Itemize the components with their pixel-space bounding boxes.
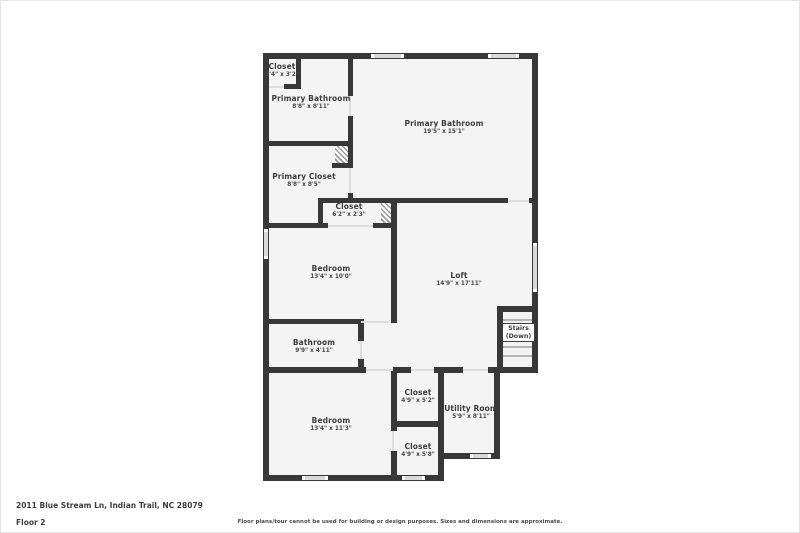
door-opening-closet-top <box>269 86 284 88</box>
door-opening-closet-mid <box>328 225 373 227</box>
door-opening-primary-closet <box>349 168 351 193</box>
floor-plan-page: Stairs (Down) Closet 3'4" x 3'2" Primary… <box>0 0 800 533</box>
door-opening-bathroom <box>360 341 362 359</box>
stair-step-line <box>503 319 532 321</box>
room-label-utility-room: Utility Room 5'9" x 8'11" <box>444 404 498 420</box>
wall-primary-closet-top <box>263 141 351 146</box>
room-label-bathroom: Bathroom 9'9" x 4'11" <box>293 338 335 354</box>
door-opening-utility <box>463 369 488 371</box>
stairs-label-line1: Stairs <box>508 325 529 333</box>
stair-step-line <box>503 346 532 348</box>
window-top-2 <box>488 54 519 58</box>
wall-stairs-top <box>497 306 538 312</box>
window-top-1 <box>371 54 404 58</box>
window-utility <box>470 454 491 458</box>
stairs-label-box: Stairs (Down) <box>502 323 535 342</box>
room-label-bedroom-bottom: Bedroom 13'4" x 11'3" <box>310 416 352 432</box>
room-label-loft: Loft 14'9" x 17'11" <box>436 271 482 287</box>
room-label-primary-bathroom-lg: Primary Bathroom 19'5" x 15'1" <box>405 119 484 135</box>
stair-step-line <box>503 355 532 357</box>
door-opening-bedroom-bottom <box>366 369 393 371</box>
room-label-closet-52: Closet 4'9" x 5'2" <box>401 388 435 404</box>
room-label-closet-58: Closet 4'9" x 5'8" <box>401 442 435 458</box>
window-right-loft <box>533 243 537 292</box>
room-label-bedroom-mid: Bedroom 13'4" x 10'0" <box>310 264 352 280</box>
wall-pb-small-right-a <box>348 53 353 96</box>
window-bottom-2 <box>402 476 425 480</box>
wall-stairs-bottom <box>497 367 538 373</box>
shaft-hatch-upper <box>335 146 348 163</box>
wall-mid-horizontal-b <box>529 198 538 203</box>
footer-address: 2011 Blue Stream Ln, Indian Trail, NC 28… <box>16 501 203 510</box>
room-label-closet-top: Closet 3'4" x 3'2" <box>265 62 299 78</box>
window-left <box>264 229 268 259</box>
footer-disclaimer: Floor plans/tour cannot be used for buil… <box>1 519 799 525</box>
wall-bedroom-mid-bottom <box>263 319 361 324</box>
door-opening-bedroom-mid <box>361 321 389 323</box>
stairs-label-line2: (Down) <box>506 333 532 341</box>
wall-closet-utility-divider <box>438 369 444 481</box>
door-opening-pb-large <box>508 200 529 202</box>
room-label-closet-mid: Closet 6'2" x 2'3" <box>332 202 366 218</box>
wall-closet-mid-left <box>318 198 323 228</box>
room-label-primary-bathroom-sm: Primary Bathroom 8'8" x 8'11" <box>272 94 351 110</box>
door-opening-closet-58 <box>392 431 394 451</box>
wall-outer-left <box>263 53 269 481</box>
wall-closet58-left-a <box>391 369 397 431</box>
window-bottom-1 <box>302 476 328 480</box>
room-label-primary-closet: Primary Closet 8'8" x 8'5" <box>272 172 336 188</box>
wall-closet58-left-b <box>391 451 397 481</box>
door-opening-closet-52 <box>411 369 434 371</box>
wall-loft-divider <box>391 198 397 323</box>
wall-closet-top-bottom-b <box>284 84 301 89</box>
wall-bathroom-bottom <box>263 367 366 373</box>
wall-closet-divider <box>393 421 443 427</box>
